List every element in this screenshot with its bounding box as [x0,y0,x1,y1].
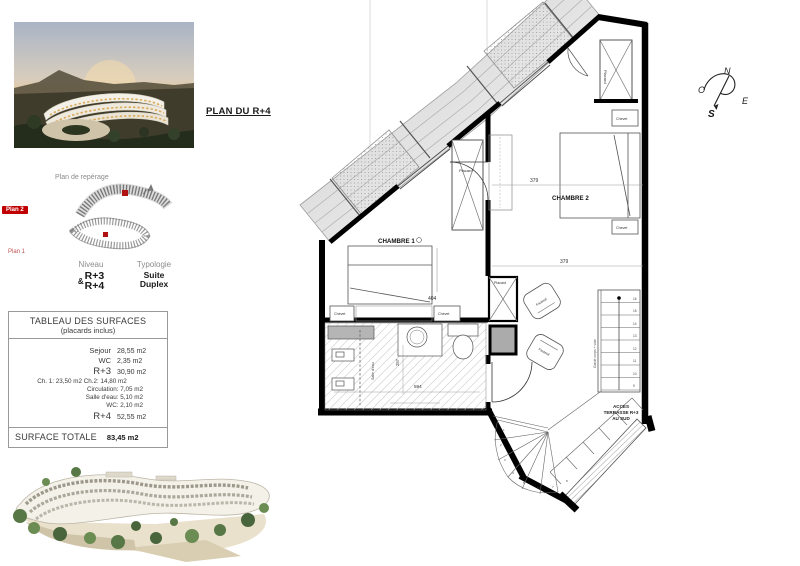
level-ampersand: & [78,277,84,286]
typologie-header: Typologie [124,260,184,269]
svg-text:11: 11 [633,359,637,363]
svg-text:13: 13 [633,334,637,338]
bathroom-niche [328,326,374,339]
surface-detail-salle-eau: Salle d'eau: 5,10 m2 [9,394,159,402]
terrace-band [300,0,600,242]
door-terrace [568,48,588,76]
dim-404: 404 [428,296,437,302]
stair-straight: Garde corps + vide 16 15 14 13 12 11 10 … [593,290,640,392]
bathroom: Salle d'eau 257 594 [325,323,486,410]
page-title: PLAN DU R+4 [206,106,306,117]
unit-marker-plan1 [103,232,108,237]
unit-marker-plan2 [122,190,128,196]
stair-note: Garde corps + vide [593,339,597,368]
surface-detail-wc: WC: 2,10 m2 [9,402,159,410]
surface-total-label: SURFACE TOTALE [15,432,97,442]
chevet-label: Chevet [616,117,627,121]
chevet-label: Chevet [334,312,345,316]
surface-total-value: 83,45 m2 [107,433,139,442]
surfaces-table: TABLEAU DES SURFACES (placards inclus) S… [8,311,168,448]
surface-detail-chambres: Ch. 1: 23,50 m2 Ch.2: 14,80 m2 [9,378,159,386]
level-r4: R+4 [85,281,105,291]
svg-text:7: 7 [552,485,554,489]
compass-s: S [708,109,715,120]
placard-top-right: Placard [594,40,638,101]
floorplan-r4: Placard Placard Placard [298,0,670,515]
placard-hall: Placard [489,277,517,321]
compass-rose: N O E S [688,46,764,124]
plan-sheet: PLAN DU R+4 Plan de repérage Plan 2 Plan… [0,0,800,566]
svg-text:8: 8 [566,479,568,483]
placard-label: Placard [603,70,608,84]
unit-info-table: Niveau Typologie & R+3 R+4 Suite Duplex [58,260,190,291]
building-rendering-day [6,452,286,564]
dim-379: 379 [530,178,539,184]
svg-text:ACCES: ACCES [613,404,629,409]
bed-chambre2 [560,110,640,234]
glazed-facade-south [560,416,652,510]
svg-text:4: 4 [512,471,514,475]
svg-text:3: 3 [504,458,506,462]
reperage-map [0,172,195,268]
plan1-label: Plan 1 [8,249,25,255]
surface-detail-circulation: Circulation: 7,05 m2 [9,386,159,394]
niveau-header: Niveau [58,260,124,269]
room-label-chambre2: CHAMBRE 2 [552,195,589,202]
svg-text:14: 14 [633,322,637,326]
placard-chambre1: Placard [452,140,483,230]
svg-text:10: 10 [633,372,637,376]
surface-total-row: SURFACE TOTALE 83,45 m2 [9,428,167,447]
surface-row-r3: R+3 30,90 m2 [9,366,159,377]
fauteuil-2: Fauteuil [524,332,566,372]
render-building [16,472,269,524]
svg-text:16: 16 [633,297,637,301]
building-photo-sunset [14,22,194,148]
compass-needle [704,74,735,110]
room-label-chambre1: CHAMBRE 1 [378,238,415,245]
svg-text:12: 12 [633,347,637,351]
section-marker-icon [417,238,422,243]
reperage-building-lower [70,218,150,249]
salle-eau-label: Salle d'eau [371,362,375,380]
svg-text:15: 15 [633,309,637,313]
door-hall [492,362,532,402]
dim-379: 379 [560,259,569,265]
svg-text:1: 1 [503,428,505,432]
chevet-label: Chevet [438,312,449,316]
dim-257: 257 [395,358,400,366]
compass-o: O [698,85,705,95]
surface-row-r4: R+4 52,55 m2 [9,411,159,422]
svg-text:2: 2 [500,443,502,447]
svg-text:9: 9 [633,384,635,388]
access-note: ACCES TERRASSE R+3 AU SUD [604,404,639,421]
compass-e: E [742,96,749,106]
reperage-building-upper [80,189,168,215]
bed-chambre1 [330,246,460,321]
placard-label: Placard [459,168,473,173]
surfaces-title: TABLEAU DES SURFACES [9,316,167,326]
plan2-badge: Plan 2 [2,206,28,214]
surface-row-sejour: Sejour 28,55 m2 [9,346,159,355]
vanity [398,324,442,356]
technical-shaft [490,326,516,354]
typology-duplex: Duplex [124,280,184,289]
stair-direction-dot [617,296,621,300]
svg-text:AU SUD: AU SUD [612,416,630,421]
placard-label: Placard [494,281,506,285]
svg-text:TERRASSE R+3: TERRASSE R+3 [604,410,639,415]
dim-594: 594 [414,384,422,389]
chevet-label: Chevet [616,226,627,230]
fauteuil-1: Fauteuil [521,281,563,322]
surface-row-wc: WC 2,35 m2 [9,356,159,365]
surfaces-subtitle: (placards inclus) [9,326,167,335]
wardrobe-chambre2 [489,135,512,210]
